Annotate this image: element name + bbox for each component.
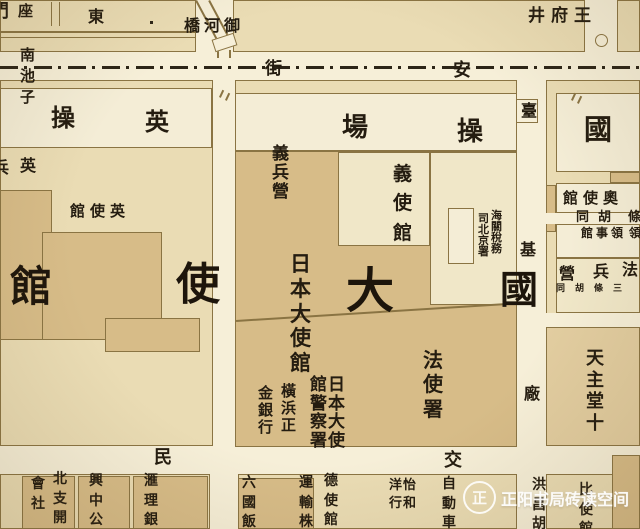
label-huili: 滙理銀 (143, 472, 159, 529)
label-wangfujing: 井府王 (528, 8, 597, 25)
label-tai: 臺 (521, 103, 537, 119)
label-fa-barracks-bing: 兵 (593, 264, 609, 280)
east-sliver (546, 185, 556, 232)
bottom-tan-2 (78, 476, 130, 529)
street-line-b (0, 37, 196, 38)
watermark-logo: 正 (463, 481, 496, 514)
tram-tick-2 (225, 93, 230, 101)
label-austrian-legation: 館使奧 (563, 191, 623, 206)
british-building-3 (105, 318, 200, 352)
label-beizhi: 北支開 (52, 470, 68, 529)
label-fa-barracks-ying: 營 (559, 266, 575, 282)
street-line-c (51, 2, 52, 26)
label-xingzhong: 興中公 (88, 472, 104, 529)
label-fa-barracks-fa: 法 (622, 262, 638, 278)
label-yokohama-1: 橫浜正 (280, 383, 297, 434)
changan-tram-centerline (0, 66, 640, 69)
label-yokohama-2: 金銀行 (257, 385, 274, 436)
watermark: 正 正阳书局砖读空间 (463, 481, 629, 514)
label-french-legation: 法使署 (422, 348, 444, 421)
label-big-shi: 使 (176, 263, 220, 307)
label-yanghang: 洋行 (388, 477, 403, 512)
label-nanchizi: 南池子 (19, 45, 36, 108)
label-big-da: 大 (346, 267, 394, 315)
label-japanese-embassy: 日本大使館 (289, 252, 312, 376)
label-ying: 英 (20, 158, 36, 174)
label-yuhe-bridge: 橋河御 (184, 18, 244, 34)
label-german-legation: 德使館 (323, 472, 339, 529)
wangfujing-junction (595, 34, 608, 47)
label-drill-chang: 場 (342, 115, 368, 141)
label-customs-2: 司北京署 (477, 213, 490, 257)
street-line-d (59, 2, 60, 26)
label-british-legation: 館使英 (70, 204, 130, 219)
street-line-a (0, 31, 196, 33)
label-drill-ying-w: 英 (145, 110, 169, 134)
label-huishe: 會社 (30, 475, 46, 514)
label-big-guan: 館 (10, 266, 52, 308)
tram-tick-1 (219, 90, 224, 98)
label-yi-legation: 義使館 (392, 160, 413, 248)
block-ne (617, 0, 640, 52)
label-dong: 東 (88, 9, 104, 25)
label-liuguo-hotel: 六國飯 (241, 474, 257, 529)
label-catholic-church: 天主堂十 (585, 348, 605, 434)
label-jp-police-2: 館警察署 (309, 376, 328, 451)
label-big-guo: 國 (500, 271, 538, 309)
label-consulate-partial: 領 (629, 227, 640, 239)
label-drill-cao-w: 操 (51, 106, 75, 130)
label-yunshu: 運輸株 (298, 474, 314, 529)
label-guo-ne: 國 (584, 116, 612, 144)
label-gate-partial: 門 (0, 3, 9, 21)
watermark-text: 正阳书局砖读空间 (501, 486, 629, 510)
lane-east-2 (546, 313, 640, 327)
label-hutong: 同胡 (576, 211, 620, 224)
label-street-min: 民 (154, 449, 172, 467)
ne-hatch-patch (610, 172, 640, 183)
label-jp-police-1: 日本大使 (327, 376, 346, 451)
map-dot (150, 21, 153, 24)
label-zuo: 座 (18, 4, 33, 19)
customs-building (448, 208, 474, 264)
label-street-an: 安 (453, 62, 471, 80)
label-automobile: 自動車 (441, 475, 457, 529)
label-street-jie: 街 (265, 61, 282, 78)
label-drill-cao-e: 操 (457, 119, 483, 145)
label-chang: 廠 (524, 386, 540, 402)
label-ying-partial: 兵 (0, 160, 9, 176)
label-yihe: 怡和 (402, 477, 417, 512)
label-tiny-hutong: 同胡條三 (556, 285, 632, 294)
canal-stub-east (229, 50, 231, 58)
italian-legation-block (338, 152, 430, 246)
watermark-logo-char: 正 (472, 487, 487, 508)
label-customs-1: 海關稅務 (490, 210, 503, 254)
map-canvas: 門座東橋河御井府王南池子街安操英場操國臺義兵營義使館兵英館使英館使奧同胡條館事領… (0, 0, 640, 529)
label-ji: 基 (520, 242, 536, 258)
label-hutong-partial: 條 (628, 211, 640, 224)
label-consulate: 館事領 (581, 227, 626, 239)
label-street-jiao: 交 (444, 452, 462, 470)
label-yi-barracks: 義兵營 (271, 145, 290, 203)
